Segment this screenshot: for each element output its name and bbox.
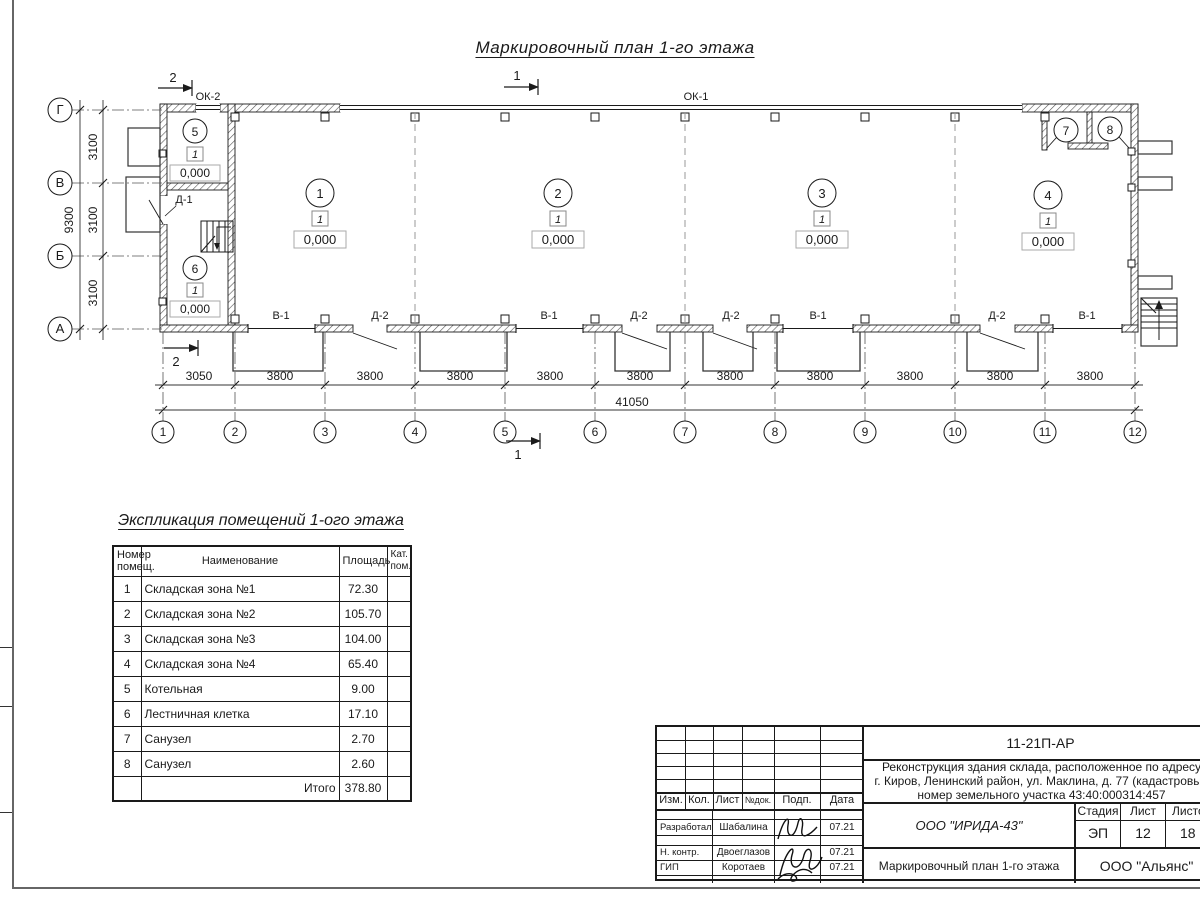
elevation-tag: 0,000 xyxy=(304,232,337,247)
axis-bubble: 4 xyxy=(412,425,419,439)
room-name: Складская зона №2 xyxy=(141,601,339,626)
room-name: Котельная xyxy=(141,676,339,701)
opening-label: Д-2 xyxy=(371,310,388,322)
person-name: Двоеглазов xyxy=(713,845,774,860)
room-number: 5 xyxy=(192,125,199,139)
elevation-tag: 0,000 xyxy=(180,166,210,180)
dim-total-label: 9300 xyxy=(62,206,76,233)
dim-label: 3800 xyxy=(1077,369,1104,383)
table-row: 5Котельная9.00 xyxy=(113,676,411,701)
total-label: Итого xyxy=(141,776,339,801)
level-tag: 1 xyxy=(317,214,323,226)
sheets-label: Листов xyxy=(1166,802,1200,820)
right-canopies xyxy=(1138,141,1172,289)
room-number: 4 xyxy=(1044,188,1051,203)
opening-label: Д-2 xyxy=(988,310,1005,322)
col-ndok: №док. xyxy=(742,792,774,809)
column-markers xyxy=(159,113,1135,323)
axis-bubble: А xyxy=(56,321,65,336)
room-number: 8 xyxy=(1107,123,1114,137)
room-number: 6 xyxy=(192,262,199,276)
zone-dividers xyxy=(415,112,955,325)
axis-bubble: 11 xyxy=(1039,425,1052,439)
person-name: Шабалина xyxy=(713,819,774,835)
room-name: Санузел xyxy=(141,726,339,751)
room-name: Складская зона №1 xyxy=(141,576,339,601)
elevation-tag: 0,000 xyxy=(542,232,575,247)
table-row: 6Лестничная клетка17.10 xyxy=(113,701,411,726)
elevation-tag: 0,000 xyxy=(1032,234,1065,249)
room-area: 17.10 xyxy=(339,701,387,726)
room-number: 1 xyxy=(316,186,323,201)
doc-title: Маркировочный план 1-го этажа xyxy=(864,849,1074,883)
door-leafs xyxy=(353,333,1025,349)
person-date: 07.21 xyxy=(820,819,864,835)
project-line2: г. Киров, Ленинский район, ул. Маклина, … xyxy=(874,774,1200,788)
sheet-label: Лист xyxy=(1121,802,1165,820)
room-number: 7 xyxy=(1063,124,1070,138)
room-cat xyxy=(387,751,411,776)
room-cat xyxy=(387,701,411,726)
col-kol: Кол. xyxy=(685,792,713,809)
dim-label: 3800 xyxy=(807,369,834,383)
dim-label: 3800 xyxy=(987,369,1014,383)
exterior-stair xyxy=(1141,298,1177,346)
col-podp: Подп. xyxy=(774,792,820,809)
col-header-name: Наименование xyxy=(141,546,339,576)
level-tag: 1 xyxy=(192,285,198,297)
org-name: ООО "ИРИДА-43" xyxy=(864,804,1074,847)
room-cat xyxy=(387,726,411,751)
dim-total-label: 41050 xyxy=(615,395,649,409)
frame-tick xyxy=(0,706,12,707)
frame-bottom-line xyxy=(12,887,1200,889)
col-header-area: Площадь xyxy=(339,546,387,576)
level-tag: 1 xyxy=(819,214,825,226)
room-annotations: 1 1 0,000 2 1 0,000 3 1 0,000 4 1 0,000 … xyxy=(170,117,1122,317)
sheet-value: 12 xyxy=(1121,820,1165,847)
elevation-tag: 0,000 xyxy=(180,302,210,316)
room-no: 2 xyxy=(113,601,141,626)
level-tag: 1 xyxy=(555,214,561,226)
table-row: 4Складская зона №465.40 xyxy=(113,651,411,676)
document-code: 11-21П-АР xyxy=(864,727,1200,759)
col-header-number: Номер помещ. xyxy=(113,546,141,576)
section-label: 2 xyxy=(169,70,176,85)
table-total-row: Итого 378.80 xyxy=(113,776,411,801)
company-name: ООО "Альянс" xyxy=(1076,849,1200,883)
window-tag-ok2: ОК-2 xyxy=(196,91,221,103)
table-row: 2Складская зона №2105.70 xyxy=(113,601,411,626)
opening-label: Д-2 xyxy=(722,310,739,322)
stage-value: ЭП xyxy=(1076,820,1120,847)
person-role: Разработал xyxy=(658,819,712,835)
room-no: 5 xyxy=(113,676,141,701)
col-izm: Изм. xyxy=(657,792,685,809)
dim-label: 3800 xyxy=(717,369,744,383)
signature-dvoeglazov xyxy=(774,839,824,883)
room-number: 3 xyxy=(818,186,825,201)
dim-label: 3100 xyxy=(86,206,100,233)
door-tag-d1: Д-1 xyxy=(175,194,192,206)
axis-bubble: В xyxy=(56,175,65,190)
dim-label: 3100 xyxy=(86,279,100,306)
axis-bubble: 3 xyxy=(322,425,329,439)
dim-label: 3800 xyxy=(537,369,564,383)
room-no: 7 xyxy=(113,726,141,751)
section-label: 1 xyxy=(514,447,521,462)
person-date: 07.21 xyxy=(820,860,864,875)
walls xyxy=(160,104,1138,332)
section-label: 1 xyxy=(513,68,520,83)
room-cat xyxy=(387,676,411,701)
left-porches xyxy=(126,128,160,232)
table-row: 7Санузел2.70 xyxy=(113,726,411,751)
explication-title: Экспликация помещений 1-ого этажа xyxy=(112,512,410,530)
sheets-value: 18 xyxy=(1166,820,1200,847)
axis-bubble: Г xyxy=(56,102,63,117)
room-no: 1 xyxy=(113,576,141,601)
axis-bubble: 8 xyxy=(772,425,779,439)
room-name: Лестничная клетка xyxy=(141,701,339,726)
axis-bubble: 7 xyxy=(682,425,689,439)
dim-label: 3800 xyxy=(267,369,294,383)
explication-table: Номер помещ. Наименование Площадь Кат. п… xyxy=(112,545,412,802)
room-area: 65.40 xyxy=(339,651,387,676)
axis-bubble: 5 xyxy=(502,425,509,439)
title-block: Изм. Кол. Лист №док. Подп. Дата Разработ… xyxy=(655,725,1200,881)
axis-bubble: 2 xyxy=(232,425,239,439)
project-line1: Реконструкция здания склада, расположенн… xyxy=(882,760,1200,774)
col-list: Лист xyxy=(713,792,742,809)
axis-bubble: Б xyxy=(56,248,65,263)
opening-label: Д-2 xyxy=(630,310,647,322)
table-row: 3Складская зона №3104.00 xyxy=(113,626,411,651)
room-cat xyxy=(387,601,411,626)
person-role: Н. контр. xyxy=(658,845,712,860)
axis-bubble: 9 xyxy=(862,425,869,439)
room-cat xyxy=(387,651,411,676)
dim-label: 3800 xyxy=(447,369,474,383)
axis-bubble: 6 xyxy=(592,425,599,439)
room-area: 9.00 xyxy=(339,676,387,701)
floor-plan: 3050 3800 3800 3800 3800 3800 3800 3800 … xyxy=(0,0,1200,470)
room-no: 8 xyxy=(113,751,141,776)
dim-label: 3050 xyxy=(186,369,213,383)
person-date: 07.21 xyxy=(820,845,864,860)
room-no: 6 xyxy=(113,701,141,726)
room-cat xyxy=(387,576,411,601)
dimension-lines xyxy=(80,100,1143,410)
window-tag-ok1: ОК-1 xyxy=(684,91,709,103)
section-marks: 2 1 2 1 xyxy=(158,68,541,462)
opening-label: В-1 xyxy=(809,310,826,322)
room-area: 72.30 xyxy=(339,576,387,601)
person-role: ГИП xyxy=(658,860,712,875)
room-no: 3 xyxy=(113,626,141,651)
project-line3: номер земельного участка 43:40:000314:45… xyxy=(917,788,1165,802)
axis-bubble: 1 xyxy=(160,425,167,439)
room-area: 2.70 xyxy=(339,726,387,751)
door-d1 xyxy=(149,196,176,224)
axis-bubble: 10 xyxy=(948,425,962,439)
room-no: 4 xyxy=(113,651,141,676)
dim-label: 3800 xyxy=(357,369,384,383)
project-description: Реконструкция здания склада, расположенн… xyxy=(866,760,1200,802)
drawing-sheet: { "sheet_title": "Маркировочный план 1-г… xyxy=(0,0,1200,900)
frame-tick xyxy=(0,812,12,813)
level-tag: 1 xyxy=(1045,216,1051,228)
table-row: 8Санузел2.60 xyxy=(113,751,411,776)
table-row: 1Складская зона №172.30 xyxy=(113,576,411,601)
opening-label: В-1 xyxy=(1078,310,1095,322)
room-area: 105.70 xyxy=(339,601,387,626)
room-name: Санузел xyxy=(141,751,339,776)
col-header-cat: Кат. пом. xyxy=(387,546,411,576)
dim-label: 3800 xyxy=(897,369,924,383)
column-bubbles: 1 2 3 4 5 6 7 8 9 10 11 12 xyxy=(152,421,1146,443)
person-name: Коротаев xyxy=(713,860,774,875)
dim-label: 3800 xyxy=(627,369,654,383)
room-number: 2 xyxy=(554,186,561,201)
frame-tick xyxy=(0,647,12,648)
elevation-tag: 0,000 xyxy=(806,232,839,247)
room-name: Складская зона №4 xyxy=(141,651,339,676)
opening-label: В-1 xyxy=(272,310,289,322)
total-value: 378.80 xyxy=(339,776,387,801)
room-area: 104.00 xyxy=(339,626,387,651)
opening-label: В-1 xyxy=(540,310,557,322)
axis-bubble: 12 xyxy=(1128,425,1142,439)
room-name: Складская зона №3 xyxy=(141,626,339,651)
room-cat xyxy=(387,626,411,651)
table-header-row: Номер помещ. Наименование Площадь Кат. п… xyxy=(113,546,411,576)
col-data: Дата xyxy=(820,792,864,809)
dim-label: 3100 xyxy=(86,133,100,160)
room-area: 2.60 xyxy=(339,751,387,776)
stage-label: Стадия xyxy=(1076,802,1120,820)
section-label: 2 xyxy=(172,354,179,369)
level-tag: 1 xyxy=(192,149,198,161)
